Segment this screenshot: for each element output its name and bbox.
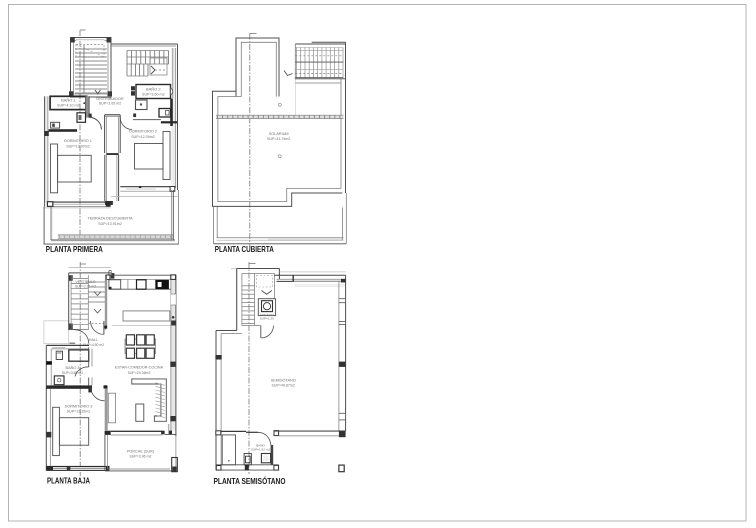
svg-text:SUP=41.74m2: SUP=41.74m2 (267, 137, 290, 141)
svg-text:BAÑO 3: BAÑO 3 (66, 365, 80, 370)
svg-text:HALL: HALL (89, 338, 99, 342)
svg-text:SUP=3.05 m2: SUP=3.05 m2 (99, 101, 121, 105)
svg-text:SUP=13.35m2: SUP=13.35m2 (67, 410, 90, 414)
svg-text:SUP=1.82 m2: SUP=1.82 m2 (251, 448, 271, 452)
svg-text:SUP=3.96 m2: SUP=3.96 m2 (130, 455, 152, 459)
svg-text:SUP=29.36m2: SUP=29.36m2 (128, 371, 151, 375)
svg-text:PORCHE (SUR): PORCHE (SUR) (127, 450, 154, 454)
svg-text:SUP=13.00m2: SUP=13.00m2 (66, 145, 89, 149)
svg-text:SUP=3.85 m2: SUP=3.85 m2 (62, 371, 83, 375)
svg-text:SOLARIUM: SOLARIUM (269, 132, 289, 136)
svg-text:SUP=1.55: SUP=1.55 (260, 317, 274, 321)
svg-text:DORMITORIO 3: DORMITORIO 3 (65, 405, 93, 409)
svg-text:SUP=12.09m2: SUP=12.09m2 (131, 135, 154, 139)
svg-text:DORMITORIO 1: DORMITORIO 1 (64, 139, 92, 143)
svg-text:SUP=13.91m2: SUP=13.91m2 (98, 222, 121, 226)
svg-text:VESTÍBULO: VESTÍBULO (75, 280, 95, 284)
svg-text:BAÑO 2: BAÑO 2 (146, 86, 161, 91)
svg-text:ESTAR-COMEDOR-COCINA: ESTAR-COMEDOR-COCINA (115, 366, 164, 370)
svg-text:TERRAZA DESCUBIERTA: TERRAZA DESCUBIERTA (87, 217, 133, 221)
svg-text:SEMISÓTANO: SEMISÓTANO (271, 378, 296, 383)
svg-text:SUP=49.87m2: SUP=49.87m2 (271, 384, 294, 388)
svg-text:SUP=2.15 m2: SUP=2.15 m2 (75, 285, 96, 289)
svg-text:SUP=4.10 m2: SUP=4.10 m2 (57, 103, 79, 107)
svg-text:SUP=3.60 m3: SUP=3.60 m3 (142, 92, 164, 96)
svg-text:BAÑO 1: BAÑO 1 (61, 98, 75, 103)
svg-text:PLANTA PRIMERA: PLANTA PRIMERA (46, 244, 103, 254)
svg-text:DORMITORIO 2: DORMITORIO 2 (129, 130, 157, 134)
svg-text:PLANTA BAJA: PLANTA BAJA (47, 476, 90, 486)
svg-text:PLANTA CUBIERTA: PLANTA CUBIERTA (215, 244, 274, 254)
svg-text:PLANTA SEMISÓTANO: PLANTA SEMISÓTANO (214, 475, 286, 486)
